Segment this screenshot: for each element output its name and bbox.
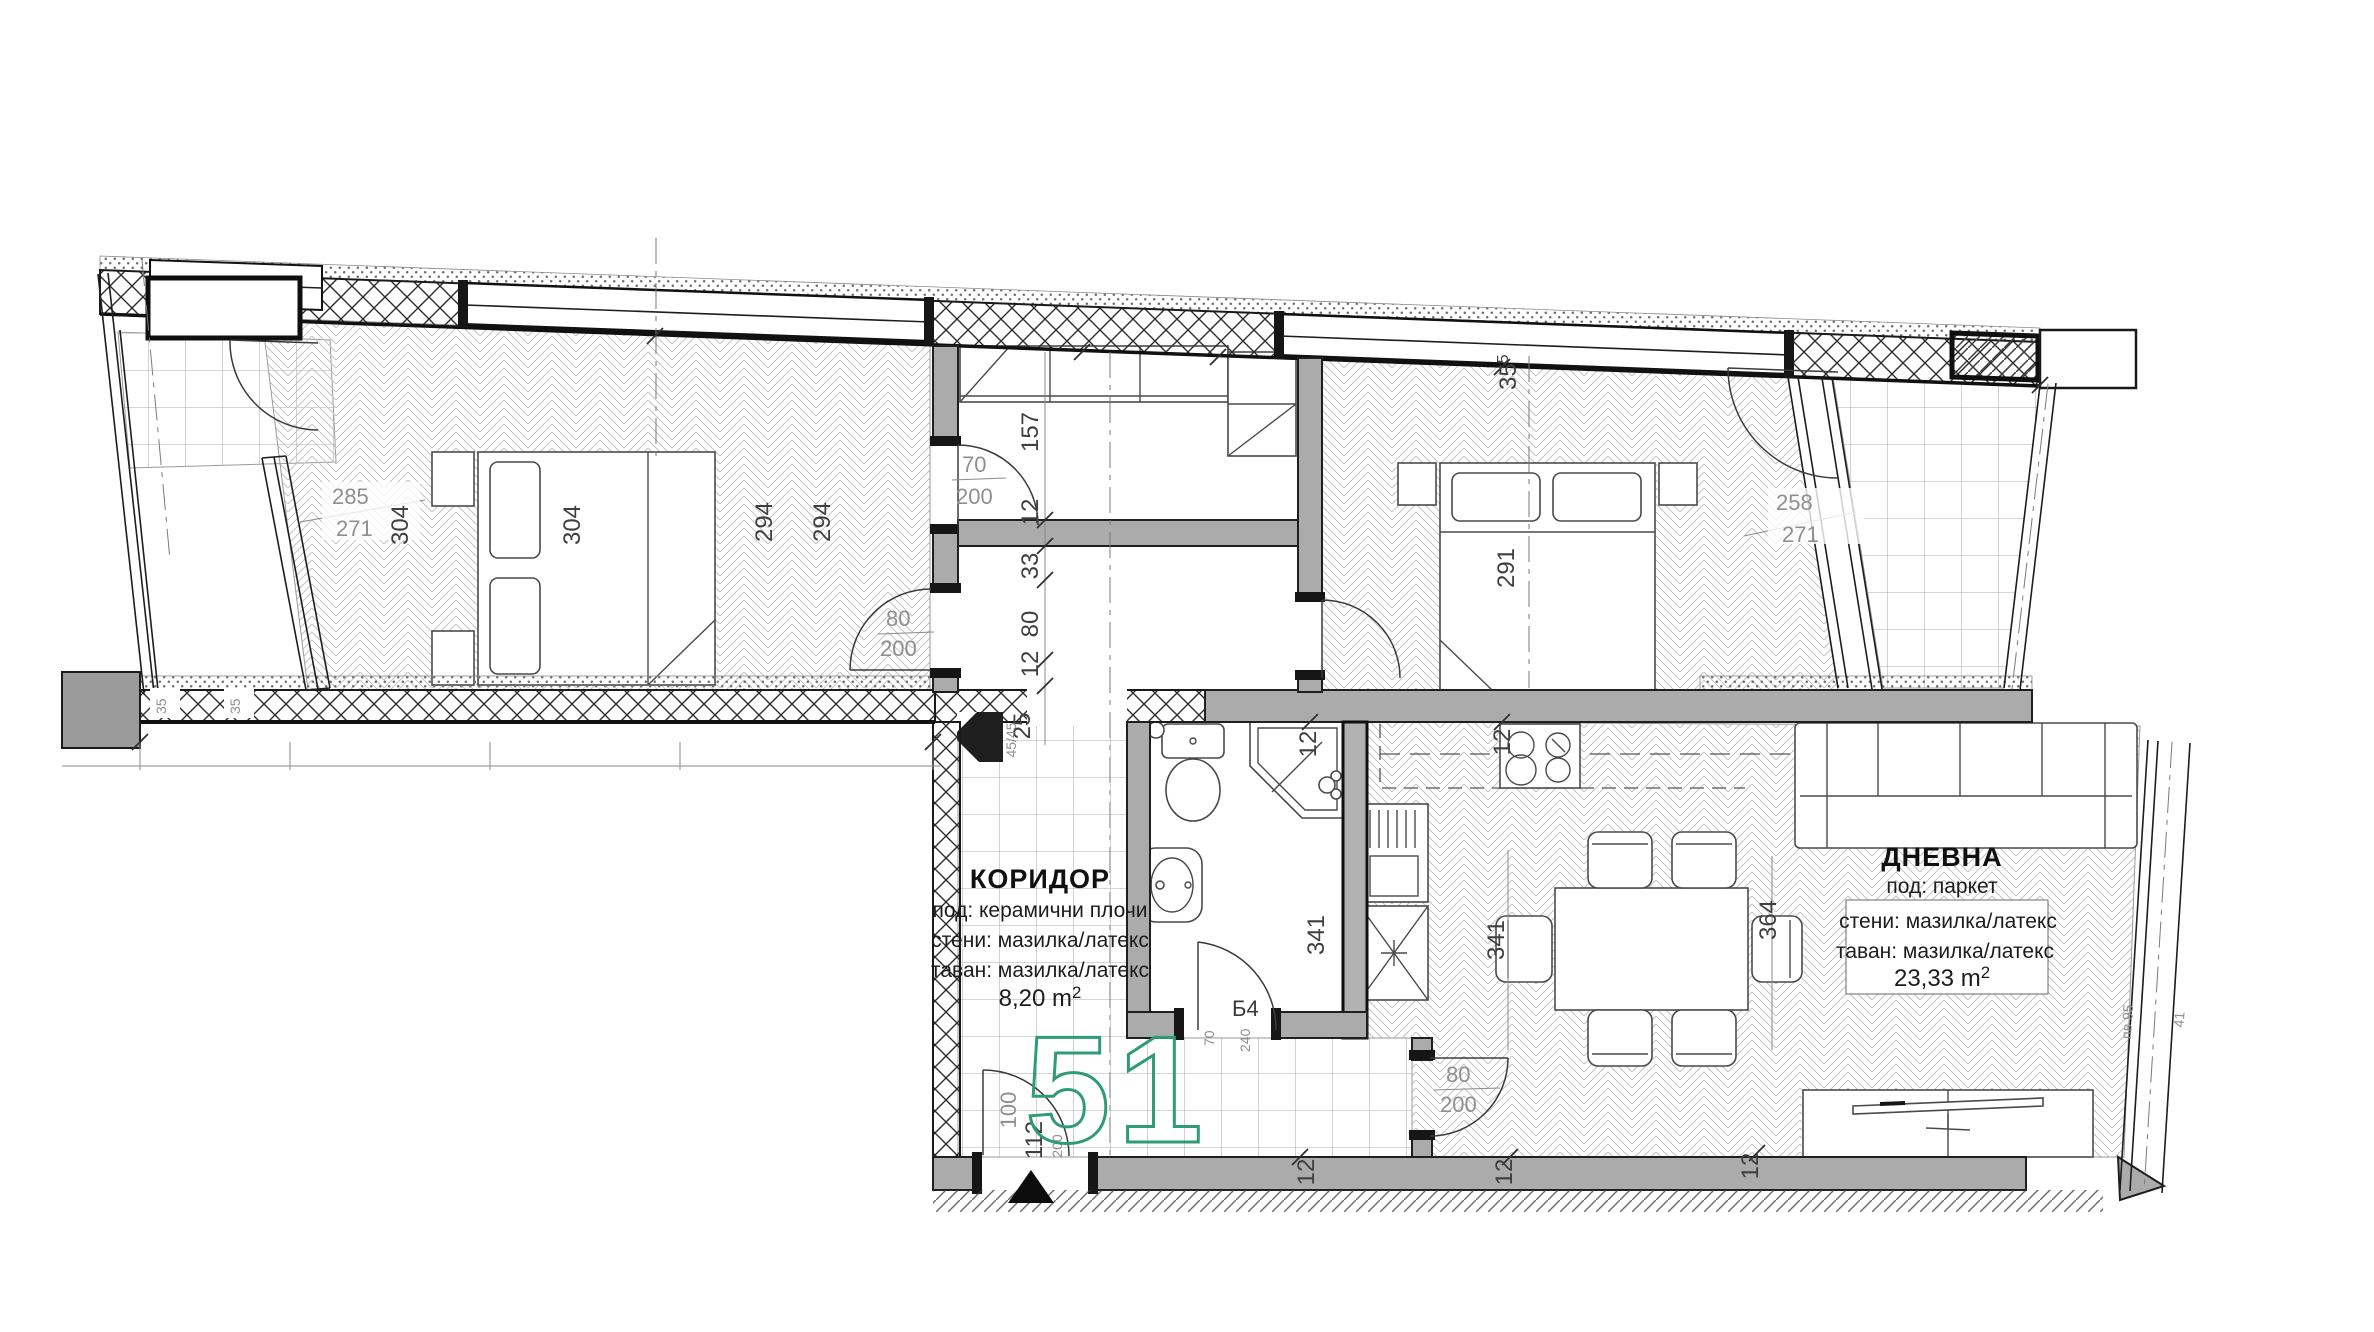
dim-dining-364: 364 (1755, 900, 1782, 940)
window-jamb (458, 280, 468, 328)
door-jamb (972, 1152, 982, 1194)
dim-12a: 12 (1017, 499, 1044, 526)
dim-bath-341: 341 (1303, 915, 1330, 955)
dim-bottom-12a: 12 (1293, 1159, 1320, 1186)
dim-door-b1-w: 80 (886, 606, 910, 631)
dim-kitchen-12: 12 (1489, 729, 1516, 756)
dim-door-dining-w: 80 (1446, 1062, 1470, 1087)
kitchen-sink-unit (1360, 804, 1428, 902)
dim-win-right-top: 258 (1776, 490, 1813, 515)
couch (1795, 723, 2137, 848)
dim-bottom-12c: 12 (1737, 1153, 1764, 1180)
dim-291: 291 (1493, 548, 1520, 588)
chair (1672, 832, 1736, 888)
living-walls: стени: мазилка/латекс (1839, 910, 2057, 933)
dim-win-41: 41 (2170, 1011, 2187, 1028)
living-name: ДНЕВНА (1881, 842, 2002, 872)
dim-win-left-top: 285 (332, 484, 369, 509)
living-floor: под: паркет (1886, 875, 1998, 898)
nightstand (1659, 463, 1697, 505)
dim-entry-100: 100 (996, 1092, 1021, 1129)
dim-157: 157 (1017, 412, 1044, 452)
living-ceiling: таван: мазилка/латекс (1836, 940, 2054, 963)
dim-bottom-12b: 12 (1491, 1159, 1518, 1186)
dim-door-dining-h: 200 (1440, 1092, 1477, 1117)
wardrobe-closet (960, 346, 1296, 456)
hall-corridor-opening (1027, 686, 1127, 726)
floor-plan-page: { "colors": { "accent_green": "#2F9B78",… (0, 0, 2374, 1332)
closet-bottom-wall (958, 520, 1298, 546)
corridor-name: КОРИДОР (970, 864, 1110, 894)
dim-bath-door-h: 240 (1237, 1028, 1253, 1052)
dim-wall-35b: 35 (227, 698, 243, 714)
corridor-ceiling: таван: мазилка/латекс (931, 959, 1149, 982)
dim-33: 33 (1017, 553, 1044, 580)
dim-dining-341: 341 (1483, 920, 1510, 960)
bottom-right-corner-wall (2118, 1157, 2164, 1200)
bed-bedroom2 (1398, 463, 1697, 690)
dim-bath-12: 12 (1295, 731, 1322, 758)
bottom-left-exterior-wall (62, 672, 935, 748)
parapet-box-left (148, 278, 300, 338)
dim-294b: 294 (809, 502, 836, 542)
dim-win-left-bottom: 271 (336, 516, 373, 541)
corner-column (62, 672, 140, 748)
parapet-box-right (2040, 330, 2136, 388)
dim-column-45: 45/45 (1003, 722, 1019, 757)
dim-door-b1-h: 200 (880, 636, 917, 661)
dim-wall-35a: 35 (153, 698, 169, 714)
chair (1588, 1010, 1652, 1066)
dim-294a: 294 (751, 502, 778, 542)
dim-12b: 12 (1017, 651, 1044, 678)
nightstand (432, 452, 474, 506)
nightstand (1398, 463, 1436, 505)
bath-door-label: Б4 (1232, 996, 1259, 1021)
neighbor-hatch (933, 1190, 2103, 1212)
chair (1588, 832, 1652, 888)
dim-win-right-bottom: 271 (1782, 522, 1819, 547)
chair (1672, 1010, 1736, 1066)
corridor-walls: стени: мазилка/латекс (931, 929, 1149, 952)
dim-304a: 304 (387, 505, 414, 545)
dim-win-pv: пв 95 (2118, 1004, 2136, 1040)
shaft-hatched (1952, 333, 2038, 380)
window-jamb (924, 297, 934, 345)
dim-door-closet-w: 70 (962, 452, 986, 477)
bedroom2-left-wall (1295, 358, 1325, 692)
washing-machine (1360, 906, 1428, 1000)
floor-plan-drawing: КОРИДОР под: керамични плочи стени: мази… (0, 0, 2374, 1332)
window-jamb (1274, 311, 1284, 359)
living-area: 23,33 m2 (1894, 963, 1990, 992)
corridor-floor: под: керамични плочи (933, 899, 1148, 922)
tv-cabinet (1803, 1090, 2093, 1157)
dim-80: 80 (1017, 611, 1044, 638)
dim-304b: 304 (559, 505, 586, 545)
toilet (1148, 722, 1224, 821)
apartment-number: 51 (1025, 1005, 1210, 1175)
bedroom1-closet-wall (930, 346, 961, 692)
dim-door-closet-h: 200 (956, 484, 993, 509)
